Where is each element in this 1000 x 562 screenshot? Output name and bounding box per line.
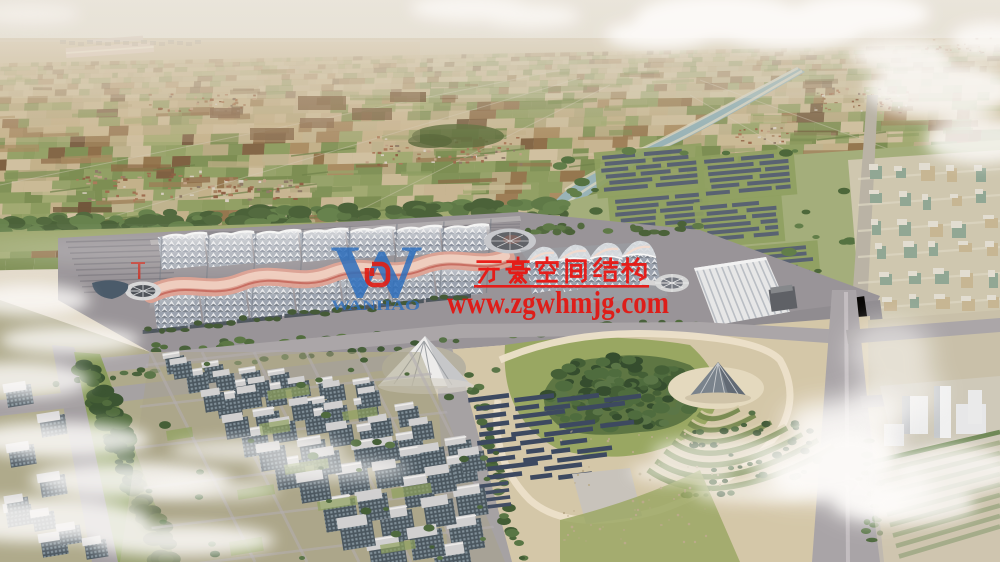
svg-text:www.zgwhmjg.com: www.zgwhmjg.com [447,284,669,320]
svg-text:WANHAO: WANHAO [331,298,420,314]
